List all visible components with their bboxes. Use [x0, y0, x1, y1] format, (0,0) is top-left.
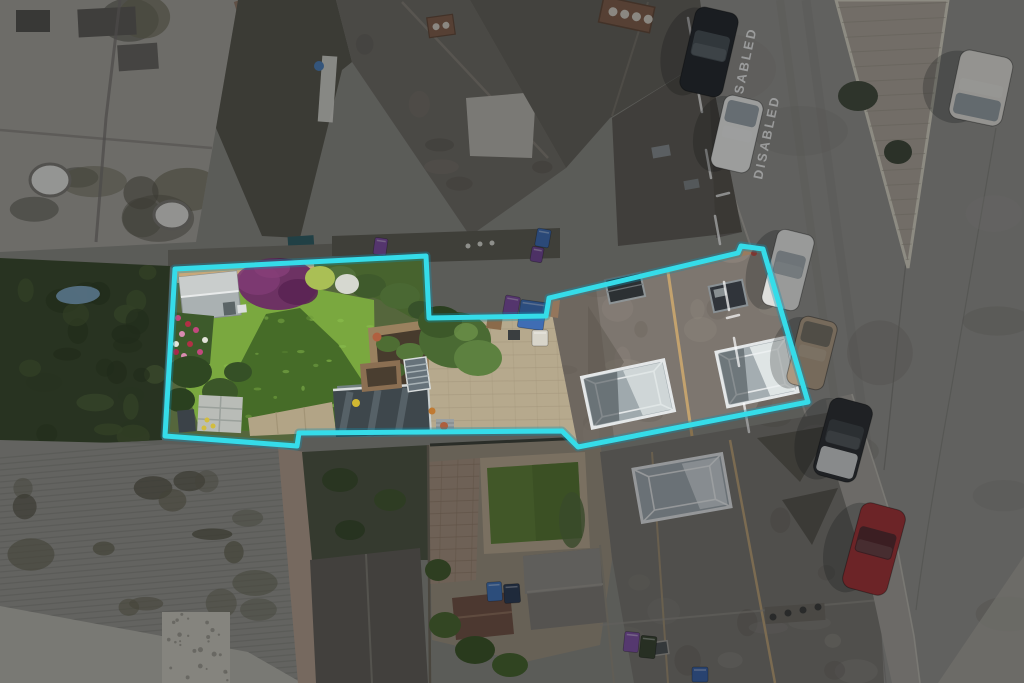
- dark-bush: [168, 356, 212, 388]
- flower-dot: [193, 327, 199, 333]
- flower-dot: [202, 337, 208, 343]
- white-sack-plot: [532, 330, 548, 346]
- flower-dot: [197, 349, 203, 355]
- grass-speckle: [282, 370, 289, 373]
- yellow-flower: [205, 418, 210, 423]
- grass-speckle: [278, 319, 285, 324]
- aerial-photo-stage: DISABLED DISABLED: [0, 0, 1024, 683]
- yellow-flower: [211, 424, 216, 429]
- slate-mottle: [690, 299, 704, 319]
- grass-speckle: [337, 319, 344, 323]
- grass-speckle: [313, 364, 318, 367]
- lime-shrub: [305, 266, 335, 290]
- grass-speckle: [282, 351, 289, 353]
- grass-speckle: [306, 316, 314, 321]
- yellow-flower: [202, 426, 207, 431]
- grass-speckle: [254, 387, 262, 390]
- grass-speckle: [339, 345, 347, 348]
- dark-bush: [224, 362, 252, 382]
- dark-item: [508, 330, 520, 340]
- brick-bed: [360, 360, 402, 392]
- slate-mottle: [634, 321, 647, 338]
- grass-speckle: [264, 316, 268, 319]
- slate-mottle: [684, 317, 717, 342]
- white-flower-shrub: [335, 274, 359, 294]
- grass-speckle: [297, 350, 305, 353]
- external-stairs: [404, 357, 430, 392]
- grass-speckle: [326, 360, 331, 362]
- grass-speckle: [273, 396, 277, 399]
- flower-dot: [179, 331, 185, 337]
- flower-dot: [187, 341, 193, 347]
- aerial-drone-photo: DISABLED DISABLED: [0, 0, 1024, 683]
- dark-bin-garden: [177, 409, 196, 432]
- orange-object: [429, 408, 436, 415]
- garden-shed: [179, 270, 247, 320]
- grass-speckle: [301, 386, 304, 391]
- flower-dot: [185, 321, 191, 327]
- grass-speckle: [366, 325, 373, 327]
- grass-speckle: [255, 353, 259, 355]
